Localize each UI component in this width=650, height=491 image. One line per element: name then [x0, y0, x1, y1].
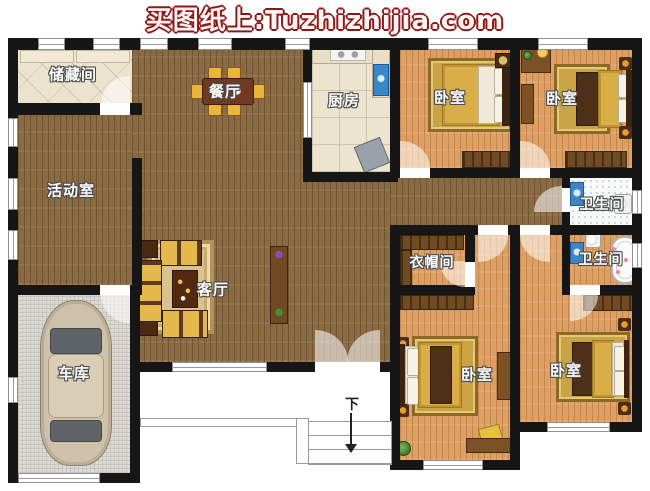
decor-dot [616, 270, 620, 274]
kitchen-sliding-door [303, 82, 312, 138]
wall-bath-left [562, 235, 570, 292]
wall-lamp [618, 402, 631, 415]
wall-storage-bottom [130, 103, 142, 115]
window [8, 377, 18, 403]
wall-living-bottom [140, 362, 172, 372]
door-gap [520, 225, 550, 235]
wall-bath-bottom [600, 285, 642, 295]
plant [523, 51, 532, 60]
wall-bath-left [562, 212, 570, 225]
car-rear-window [50, 420, 102, 442]
wardrobe [400, 295, 474, 310]
storage-closet [20, 50, 74, 63]
wall-living-bottom [267, 362, 315, 372]
wall-bedroom-bottom [430, 168, 520, 178]
wall-hall-bottom [508, 225, 520, 235]
room-label-garage: 车库 [58, 363, 90, 384]
desk [497, 352, 511, 400]
site-header: 买图纸上:Tuzhizhijia.com [0, 0, 650, 37]
door-gap [520, 168, 550, 178]
wall-hall-bottom [550, 225, 642, 235]
dresser [462, 151, 512, 168]
bed-headboard [624, 340, 629, 398]
window [8, 178, 18, 210]
room-label-bedroom-top-right: 卧室 [546, 88, 578, 109]
dresser [565, 151, 627, 168]
window [547, 422, 610, 432]
wall-bedroom-divider [510, 235, 520, 470]
window [285, 38, 310, 50]
window [198, 38, 232, 50]
window [93, 38, 120, 50]
window [172, 362, 267, 372]
sofa-bottom [162, 310, 208, 338]
door-gap [100, 285, 130, 295]
bed-headboard [502, 64, 510, 126]
dining-chair [208, 104, 222, 116]
room-label-bedroom-bottom-right: 卧室 [550, 360, 582, 381]
window [140, 38, 168, 50]
site-title: 买图纸上:Tuzhizhijia.com [146, 0, 505, 37]
wall-kitchen-bottom [303, 172, 398, 182]
wall-bedroom-divider [510, 38, 520, 178]
bed-blanket [576, 72, 600, 126]
room-label-storage: 储藏间 [49, 64, 97, 85]
stairs-down-arrow [350, 413, 352, 445]
room-label-dining: 餐厅 [209, 81, 241, 102]
storage-closet [76, 50, 130, 63]
door-gap [570, 285, 600, 295]
room-label-cloakroom: 衣帽间 [410, 252, 455, 272]
room-label-bedroom-bottom-middle: 卧室 [461, 364, 493, 385]
wall-garage-bottom [100, 473, 140, 483]
window [38, 38, 65, 50]
wall-garage-top [130, 285, 142, 295]
coffee-table [172, 270, 198, 308]
room-label-bedroom-top-middle: 卧室 [434, 87, 466, 108]
wall-bedroom-bottom [390, 168, 400, 178]
low-table [466, 438, 512, 453]
wall-bath-bottom [562, 285, 570, 295]
door-gap [100, 103, 130, 115]
room-label-living: 客厅 [197, 279, 229, 300]
bed-blanket [430, 346, 452, 404]
room-label-bathroom-upper: 卫生间 [580, 194, 625, 214]
stairs-down-arrowhead [345, 444, 357, 453]
door-gap [562, 188, 570, 212]
stairs-down-label: 下 [345, 394, 359, 414]
window [632, 243, 642, 268]
wall-bedroom-bottom [390, 460, 423, 470]
wall-garage-top [8, 285, 100, 295]
wall-garage-right [130, 295, 140, 483]
kitchen-sink [373, 64, 389, 96]
wall-bedroom-bottom [610, 422, 642, 432]
door-gap [478, 225, 508, 235]
tv-stand [270, 246, 288, 324]
wall-storage-bottom [8, 103, 100, 115]
bed [592, 340, 614, 398]
side-cabinet [521, 84, 534, 124]
porch-step [140, 418, 298, 427]
room-label-activity: 活动室 [47, 180, 95, 201]
window [428, 38, 478, 50]
decor-dot [624, 258, 628, 262]
window [8, 230, 18, 260]
dining-chair [227, 104, 241, 116]
window [8, 118, 18, 147]
window [538, 38, 588, 50]
wall-activity-divider [132, 158, 142, 295]
wall-right [632, 38, 642, 432]
room-label-kitchen: 厨房 [328, 90, 360, 111]
door-gap [465, 262, 475, 287]
door-gap [315, 362, 380, 372]
floor-plan-page: 买图纸上:Tuzhizhijia.com [0, 0, 650, 491]
wall-hall-bottom [390, 225, 478, 235]
wall-garage-bottom [8, 473, 18, 483]
wall-lamp [619, 57, 632, 70]
cloakroom-wardrobe [400, 235, 464, 250]
nightstand [495, 53, 511, 68]
door-gap [400, 168, 430, 178]
dining-chair [253, 84, 265, 99]
wall-lamp [618, 318, 631, 331]
garage-door [18, 473, 100, 483]
sofa-top [160, 240, 202, 266]
room-label-bathroom-lower: 卫生间 [579, 249, 624, 269]
wall-lamp [619, 126, 632, 139]
window [632, 190, 642, 214]
wall-bath-left [562, 178, 570, 188]
wall-kitchen-right [390, 38, 400, 178]
window [423, 460, 483, 470]
wall-bedroom-bottom [550, 168, 642, 178]
wall-bedroom-bottom [510, 422, 547, 432]
wall-cloakroom-right [465, 235, 475, 262]
car-windshield [50, 328, 102, 354]
